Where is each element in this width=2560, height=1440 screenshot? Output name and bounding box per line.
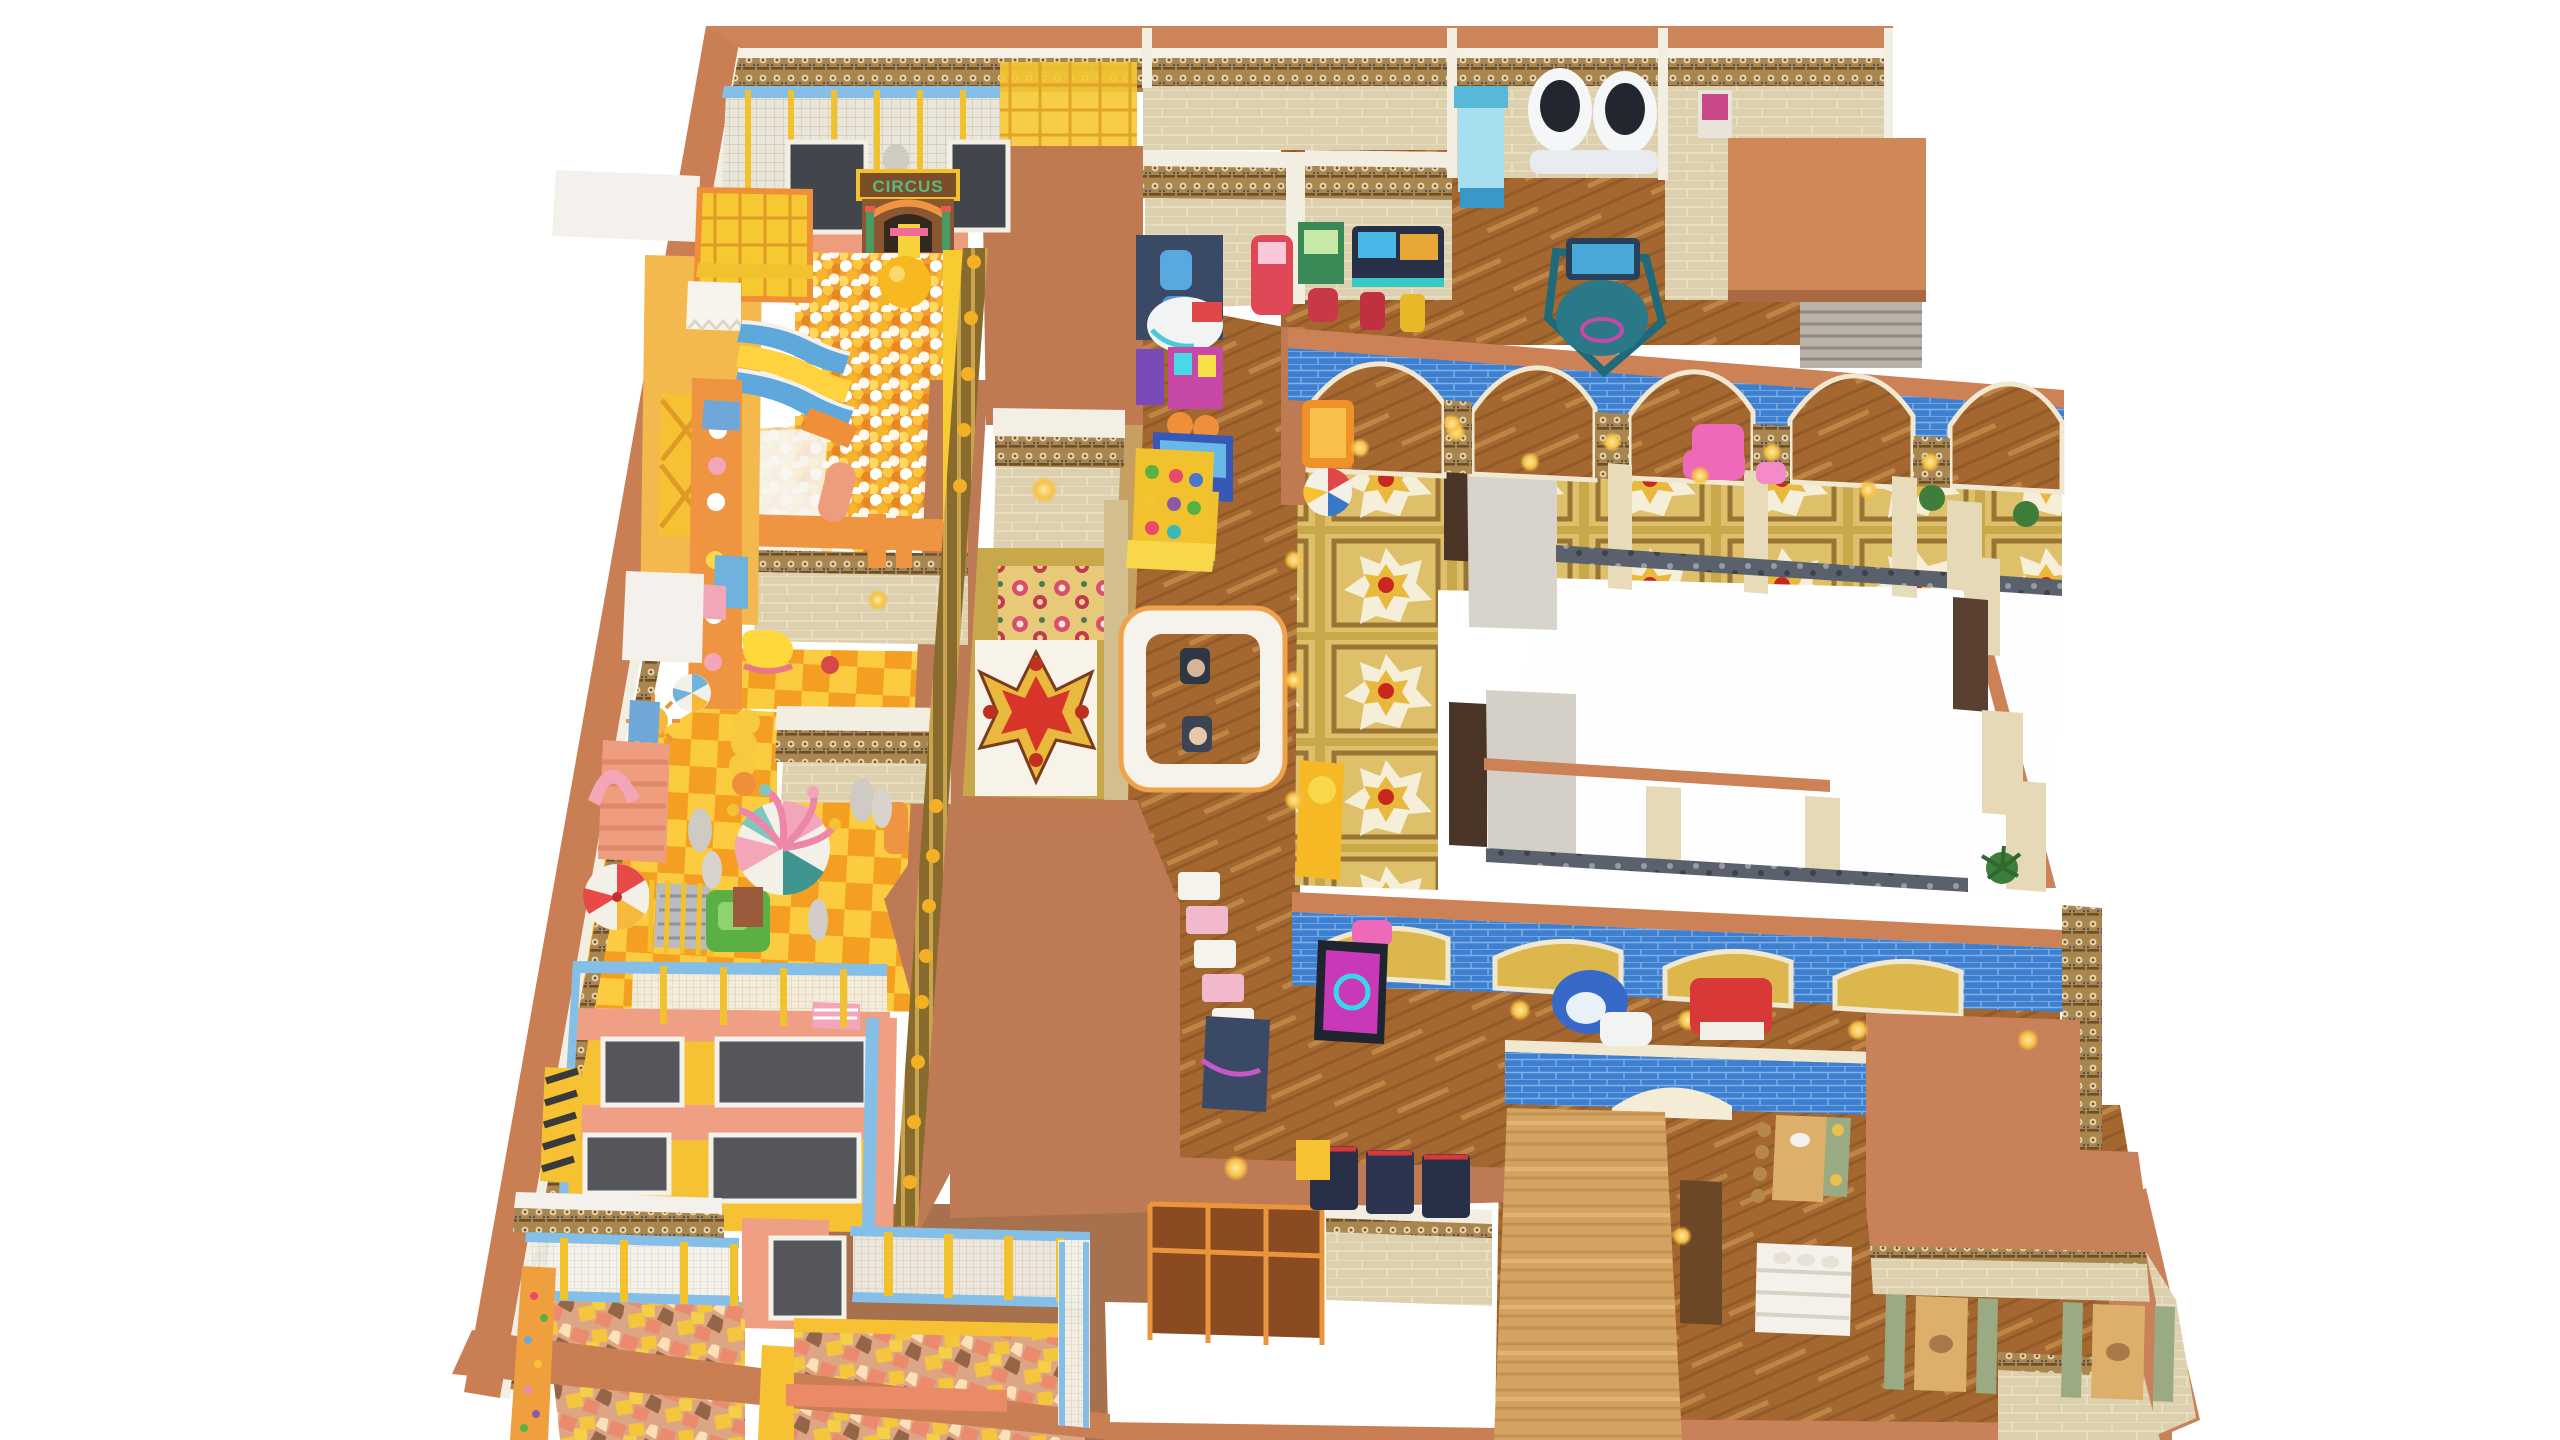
svg-text:CIRCUS: CIRCUS xyxy=(872,177,943,196)
